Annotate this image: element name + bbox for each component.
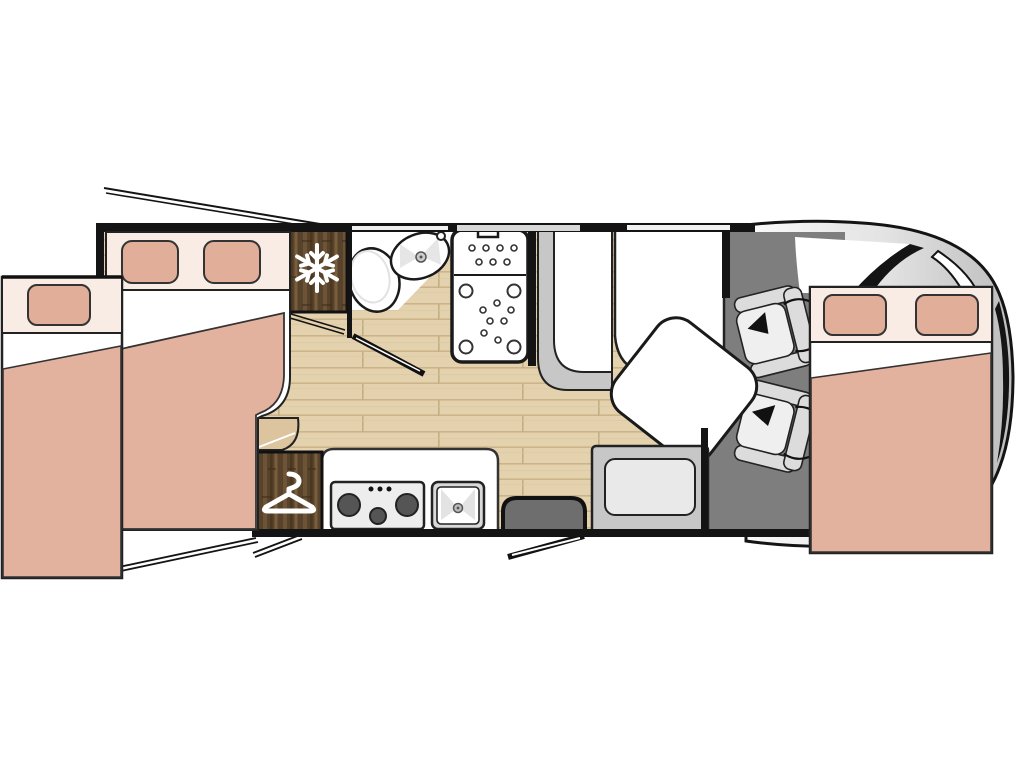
window-top-2 (457, 225, 580, 231)
shower-cubicle (452, 226, 536, 366)
overcab-bed-pillow-1 (824, 295, 886, 335)
entry (503, 498, 585, 557)
slide-out-arms (100, 535, 302, 575)
overcab-bed-blanket (811, 353, 991, 552)
cab-bulkhead-wall (722, 227, 730, 298)
slide-out-bed-blanket (3, 346, 121, 577)
slide-out-bed-pillow (28, 285, 90, 325)
faucet-icon (437, 232, 445, 240)
overcab-bed (810, 287, 992, 553)
floorplan-canvas (0, 0, 1024, 768)
bench-side-wall (701, 428, 708, 535)
slide-out-bed (2, 277, 122, 578)
rear-bed-pillow-1 (122, 241, 178, 283)
kitchen (322, 449, 498, 533)
bench-side (592, 446, 708, 533)
kitchen-sink (432, 482, 484, 529)
motorhome-floorplan (0, 0, 1024, 768)
entry-step (503, 498, 585, 533)
shower-wall (528, 228, 536, 366)
window-top-3 (627, 225, 730, 230)
bench-rear-cushion (554, 230, 612, 372)
overcab-bed-pillow-2 (916, 295, 978, 335)
wall-bottom (252, 529, 818, 537)
hob-stove (331, 482, 424, 529)
entry-door-face (512, 538, 580, 555)
window-top-1 (352, 226, 448, 230)
rear-bed-pillow-2 (204, 241, 260, 283)
